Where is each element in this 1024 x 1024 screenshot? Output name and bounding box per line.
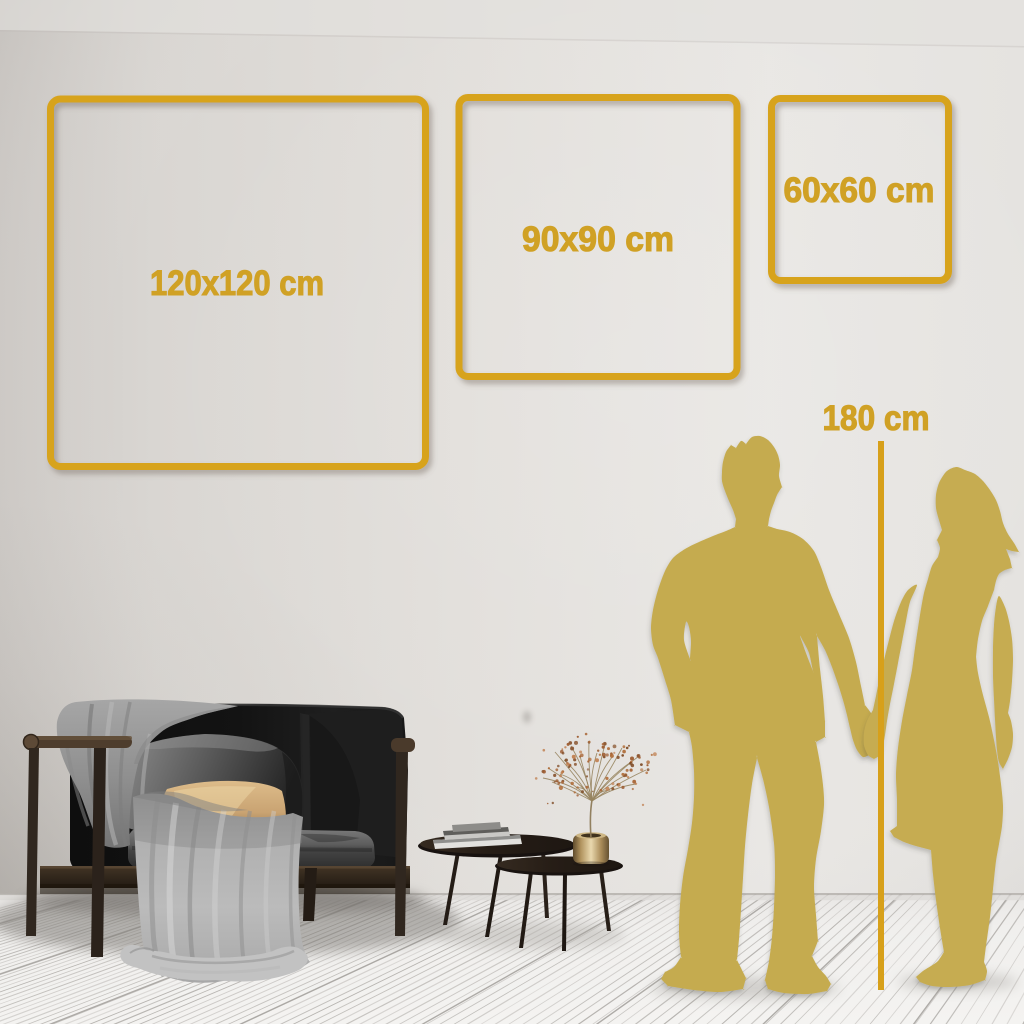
svg-text:120x120 cm: 120x120 cm — [150, 264, 324, 303]
svg-text:60x60 cm: 60x60 cm — [784, 171, 935, 210]
svg-text:90x90 cm: 90x90 cm — [522, 220, 674, 259]
svg-text:180 cm: 180 cm — [823, 399, 930, 438]
